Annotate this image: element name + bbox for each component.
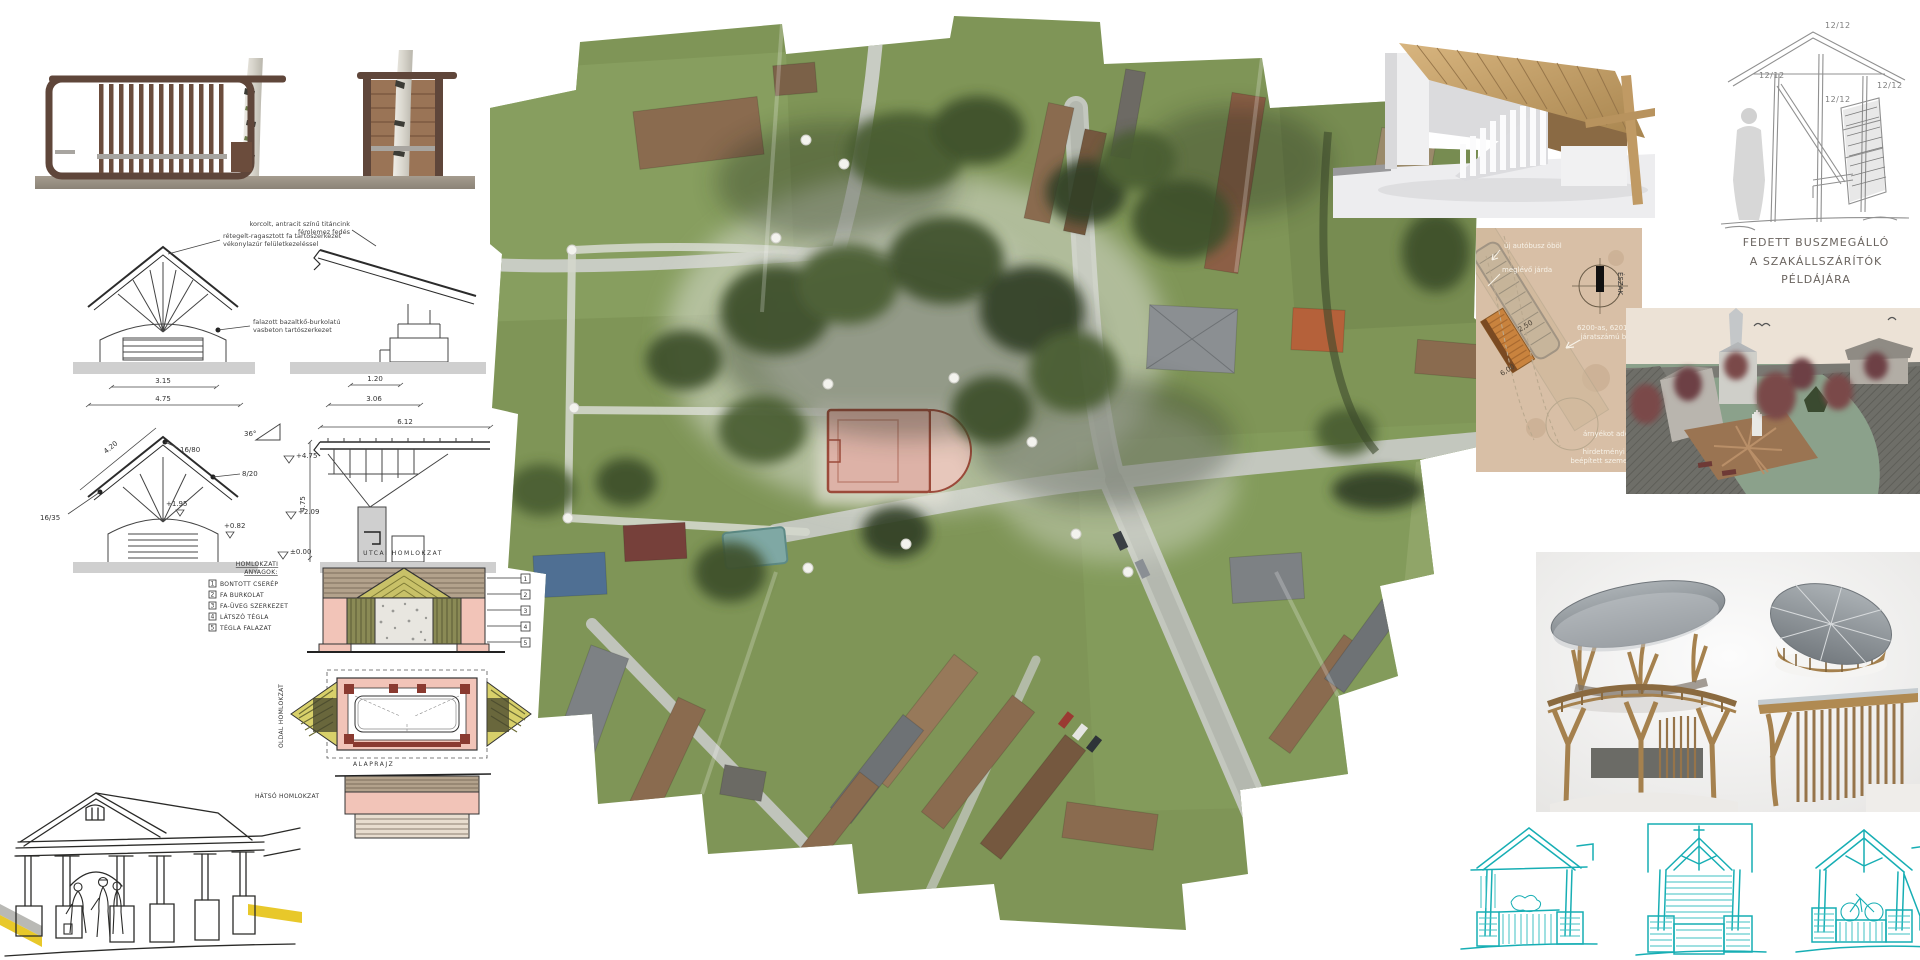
annotation-basalt-base: falazott bazaltkő-burkolatú — [253, 317, 340, 326]
label-sidewalk: meglévő járda — [1502, 265, 1552, 274]
side-elevation-label: OLDAL HOMLOKZAT — [278, 684, 285, 748]
teal-sketch-1 — [1453, 816, 1605, 960]
svg-text:5: 5 — [210, 625, 214, 632]
bush-scribble — [1511, 895, 1541, 911]
dim-306: 3.06 — [366, 395, 382, 403]
svg-text:12/12: 12/12 — [1877, 81, 1903, 90]
legend-item: LÁTSZÓ TÉGLA — [220, 613, 269, 621]
bench — [97, 154, 227, 159]
level-marks — [176, 456, 296, 559]
label-1635: 16/35 — [40, 514, 60, 522]
svg-text:1: 1 — [210, 581, 214, 588]
section-drawings: rétegelt-ragasztott fa tartószerkezet vé… — [28, 212, 498, 412]
side-gable-left — [291, 682, 337, 746]
svg-text:12/12: 12/12 — [1759, 71, 1785, 80]
sketch-caption: FEDETT BUSZMEGÁLLÓ — [1743, 236, 1890, 249]
base-block — [1561, 146, 1627, 186]
svg-text:4: 4 — [210, 614, 214, 621]
svg-text:korcolt, antracit színű titánc: korcolt, antracit színű titáncink — [249, 219, 350, 228]
svg-text:2: 2 — [210, 592, 214, 599]
svg-text:PÉLDÁJÁRA: PÉLDÁJÁRA — [1781, 273, 1851, 286]
yellow-kerb-right — [248, 904, 302, 923]
people — [64, 878, 123, 938]
plan-label: ALAPRAJZ — [353, 761, 394, 768]
svg-text:HOMLOKZATI: HOMLOKZATI — [236, 561, 278, 568]
statue — [1752, 414, 1762, 436]
angle-mark: 36° — [244, 424, 280, 440]
teal-sketch-2 — [1618, 812, 1780, 960]
svg-text:vasbeton tartószerkezet: vasbeton tartószerkezet — [253, 326, 332, 334]
shelter-frame — [49, 76, 286, 177]
svg-text:12/12: 12/12 — [1825, 95, 1851, 104]
label-bus-bay: új autóbusz öböl — [1504, 242, 1562, 250]
label-1680: 16/80 — [180, 446, 200, 454]
architecture-presentation-board: rétegelt-ragasztott fa tartószerkezet vé… — [0, 0, 1920, 960]
ink-sketch-pavilion — [0, 786, 302, 960]
svg-text:ANYAGOK:: ANYAGOK: — [244, 569, 278, 576]
svg-text:fémlemez fedés: fémlemez fedés — [298, 228, 351, 236]
legend-item: FA BURKOLAT — [220, 592, 264, 599]
sketch-lines — [5, 793, 300, 956]
dim-475: 4.75 — [155, 395, 171, 403]
dim-315: 3.15 — [155, 377, 171, 385]
svg-text:6.12: 6.12 — [397, 418, 413, 426]
dim-420: 4.20 — [102, 440, 119, 456]
ground — [73, 362, 255, 374]
label-820: 8/20 — [242, 470, 258, 478]
svg-text:+0.82: +0.82 — [224, 522, 245, 530]
siteplan-detail: ÉSZAK új autóbusz öböl meglévő járda 620… — [1476, 228, 1642, 472]
village-square-render — [1626, 308, 1920, 494]
render-shelter-front — [35, 58, 370, 198]
svg-text:+4.75: +4.75 — [296, 452, 317, 460]
dim-roof-pitch: 12/12 — [1825, 21, 1851, 30]
info-panel — [231, 142, 252, 172]
street-elevation-title: UTCAI HOMLOKZAT — [363, 550, 443, 557]
svg-text:A SZAKÁLLSZÁRÍTÓK: A SZAKÁLLSZÁRÍTÓK — [1750, 255, 1882, 268]
dim-120: 1.20 — [367, 375, 383, 383]
legend-item: TÉGLA FALAZAT — [219, 624, 272, 632]
svg-text:+1.95: +1.95 — [166, 500, 187, 508]
legend-item: BONTOTT CSERÉP — [220, 580, 278, 588]
pencil-sketch-busstop: 12/12 12/12 12/12 12/12 FEDETT BUSZMEGÁL… — [1713, 12, 1920, 290]
hatch-board — [1843, 100, 1885, 202]
side-cabinet — [357, 50, 457, 176]
render-shelter-side — [345, 50, 475, 198]
dim-v475: 4.75 — [299, 496, 307, 512]
svg-text:36°: 36° — [244, 430, 256, 438]
svg-text:vékonylazúr felületkezeléssel: vékonylazúr felületkezeléssel — [223, 240, 318, 248]
render-modern-shelter — [1333, 18, 1655, 218]
svg-text:3: 3 — [210, 603, 214, 610]
legend-item: FA-ÜVEG SZERKEZET — [220, 603, 288, 610]
pavilion-renders — [1536, 552, 1920, 812]
north-label: ÉSZAK — [1616, 272, 1625, 295]
bicycle-scribble — [1841, 894, 1883, 921]
material-legend: HOMLOKZATI ANYAGOK: 1 2 3 4 5 BONTOTT CS… — [209, 561, 288, 632]
human-silhouette — [1733, 108, 1765, 220]
teal-sketch-3 — [1786, 816, 1920, 958]
